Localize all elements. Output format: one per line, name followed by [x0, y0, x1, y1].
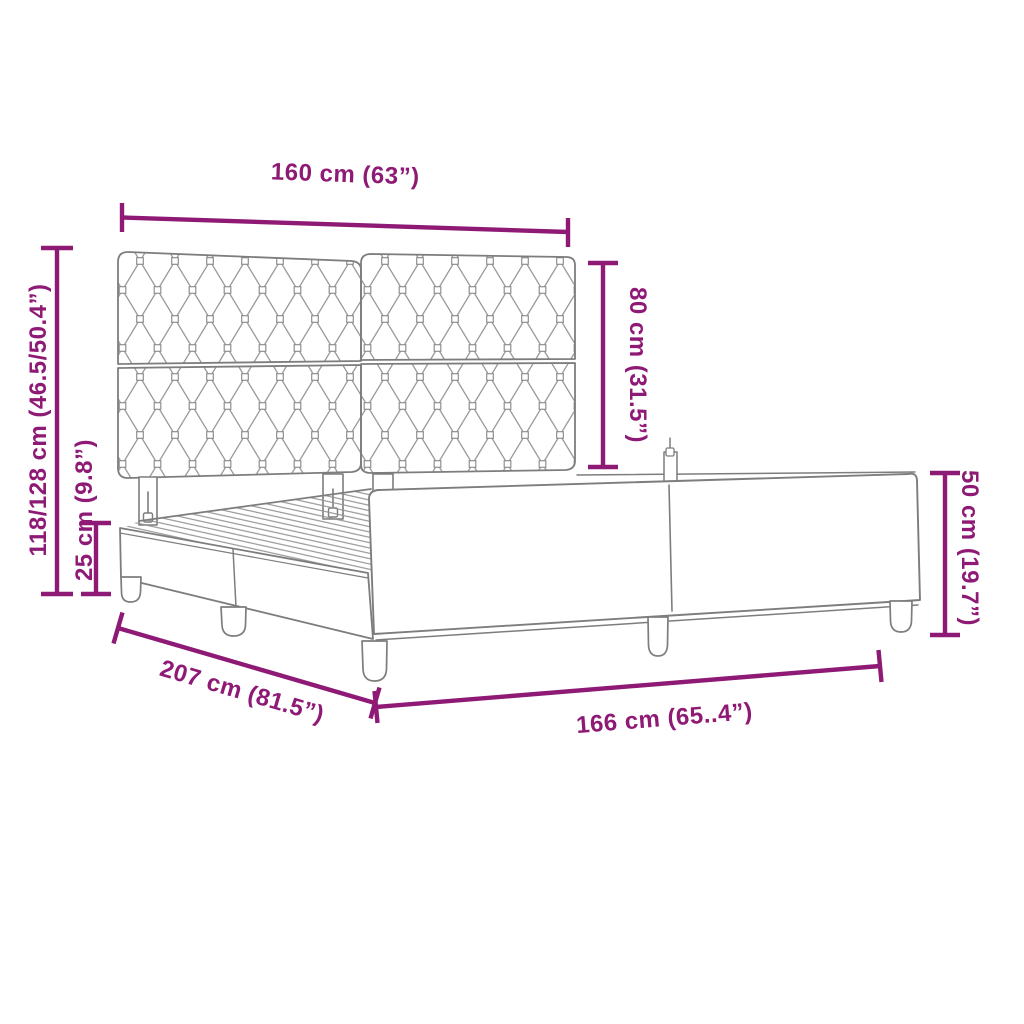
dimension-headboard-width — [122, 203, 568, 247]
label-total-height: 118/128 cm (46.5/50.4”) — [25, 283, 52, 556]
headboard-panel-bottom-right — [361, 363, 575, 473]
dim-cap — [879, 650, 882, 682]
bed-drawing — [118, 252, 920, 681]
dim-cap — [375, 691, 378, 723]
diagram-svg: 160 cm (63”) 80 cm (31.5”) 118/128 cm (4… — [0, 0, 1024, 1024]
dim-line — [376, 666, 880, 707]
bed-frame-dimension-diagram: 160 cm (63”) 80 cm (31.5”) 118/128 cm (4… — [0, 0, 1024, 1024]
leg-front-right — [890, 601, 912, 632]
headboard — [118, 252, 575, 478]
headboard-post-right-partial — [373, 474, 393, 491]
label-frame-width: 166 cm (65..4”) — [575, 698, 754, 739]
headboard-panel-bottom-left — [118, 365, 361, 478]
label-base-height: 25 cm (9.8”) — [71, 439, 98, 581]
leg-front-mid — [648, 617, 668, 656]
dimension-headboard-height — [588, 263, 618, 467]
headboard-panel-top-left — [118, 252, 361, 364]
leg-mid-left — [221, 607, 246, 636]
label-headboard-width: 160 cm (63”) — [270, 158, 420, 190]
dim-line — [122, 218, 568, 233]
far-post-nut — [666, 448, 674, 456]
label-headboard-height: 80 cm (31.5”) — [624, 287, 651, 443]
dimension-footboard-height — [930, 473, 960, 635]
headboard-panel-top-right — [361, 254, 575, 360]
far-post — [664, 438, 677, 482]
label-footboard-height: 50 cm (19.7”) — [956, 470, 983, 626]
leg-back-left — [121, 577, 141, 602]
leg-front-corner — [362, 641, 387, 681]
